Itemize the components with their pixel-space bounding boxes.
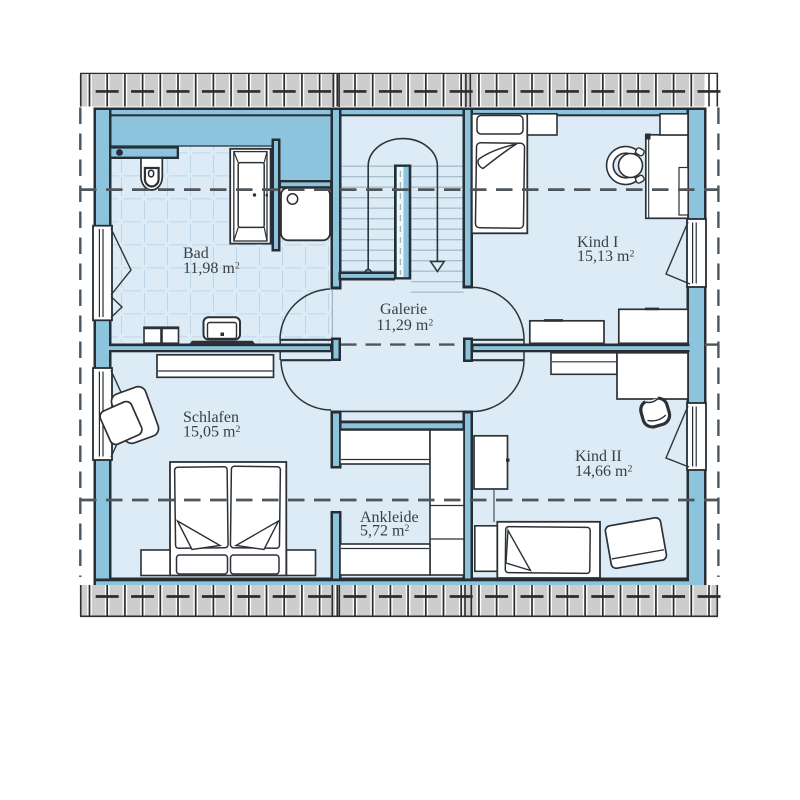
svg-text:15,05 m2: 15,05 m2 [183, 424, 240, 441]
svg-text:15,13 m2: 15,13 m2 [577, 248, 634, 265]
svg-text:11,98 m2: 11,98 m2 [183, 260, 240, 277]
svg-text:Galerie: Galerie [380, 301, 427, 318]
svg-text:5,72 m2: 5,72 m2 [360, 523, 409, 540]
svg-text:14,66 m2: 14,66 m2 [575, 463, 632, 480]
svg-text:11,29 m2: 11,29 m2 [377, 317, 434, 334]
